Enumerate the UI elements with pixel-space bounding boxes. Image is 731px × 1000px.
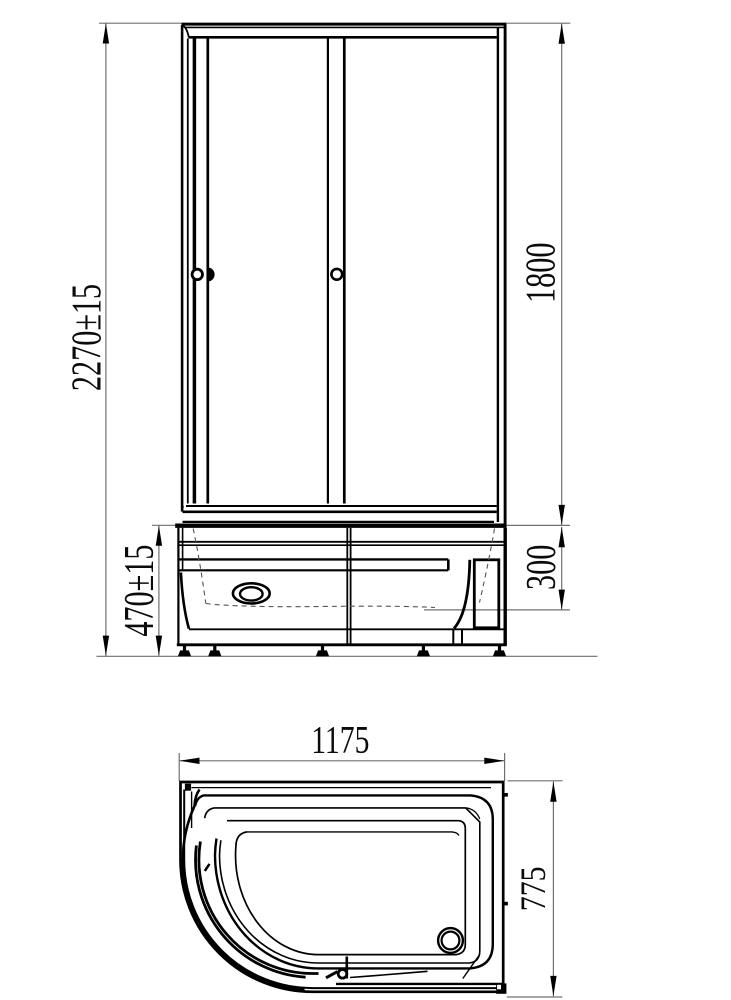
svg-text:2270±15: 2270±15 xyxy=(63,284,110,391)
svg-text:1175: 1175 xyxy=(311,719,369,762)
svg-text:300: 300 xyxy=(517,545,564,590)
svg-text:775: 775 xyxy=(515,866,554,911)
svg-text:470±15: 470±15 xyxy=(115,545,162,637)
svg-text:1800: 1800 xyxy=(516,243,563,303)
